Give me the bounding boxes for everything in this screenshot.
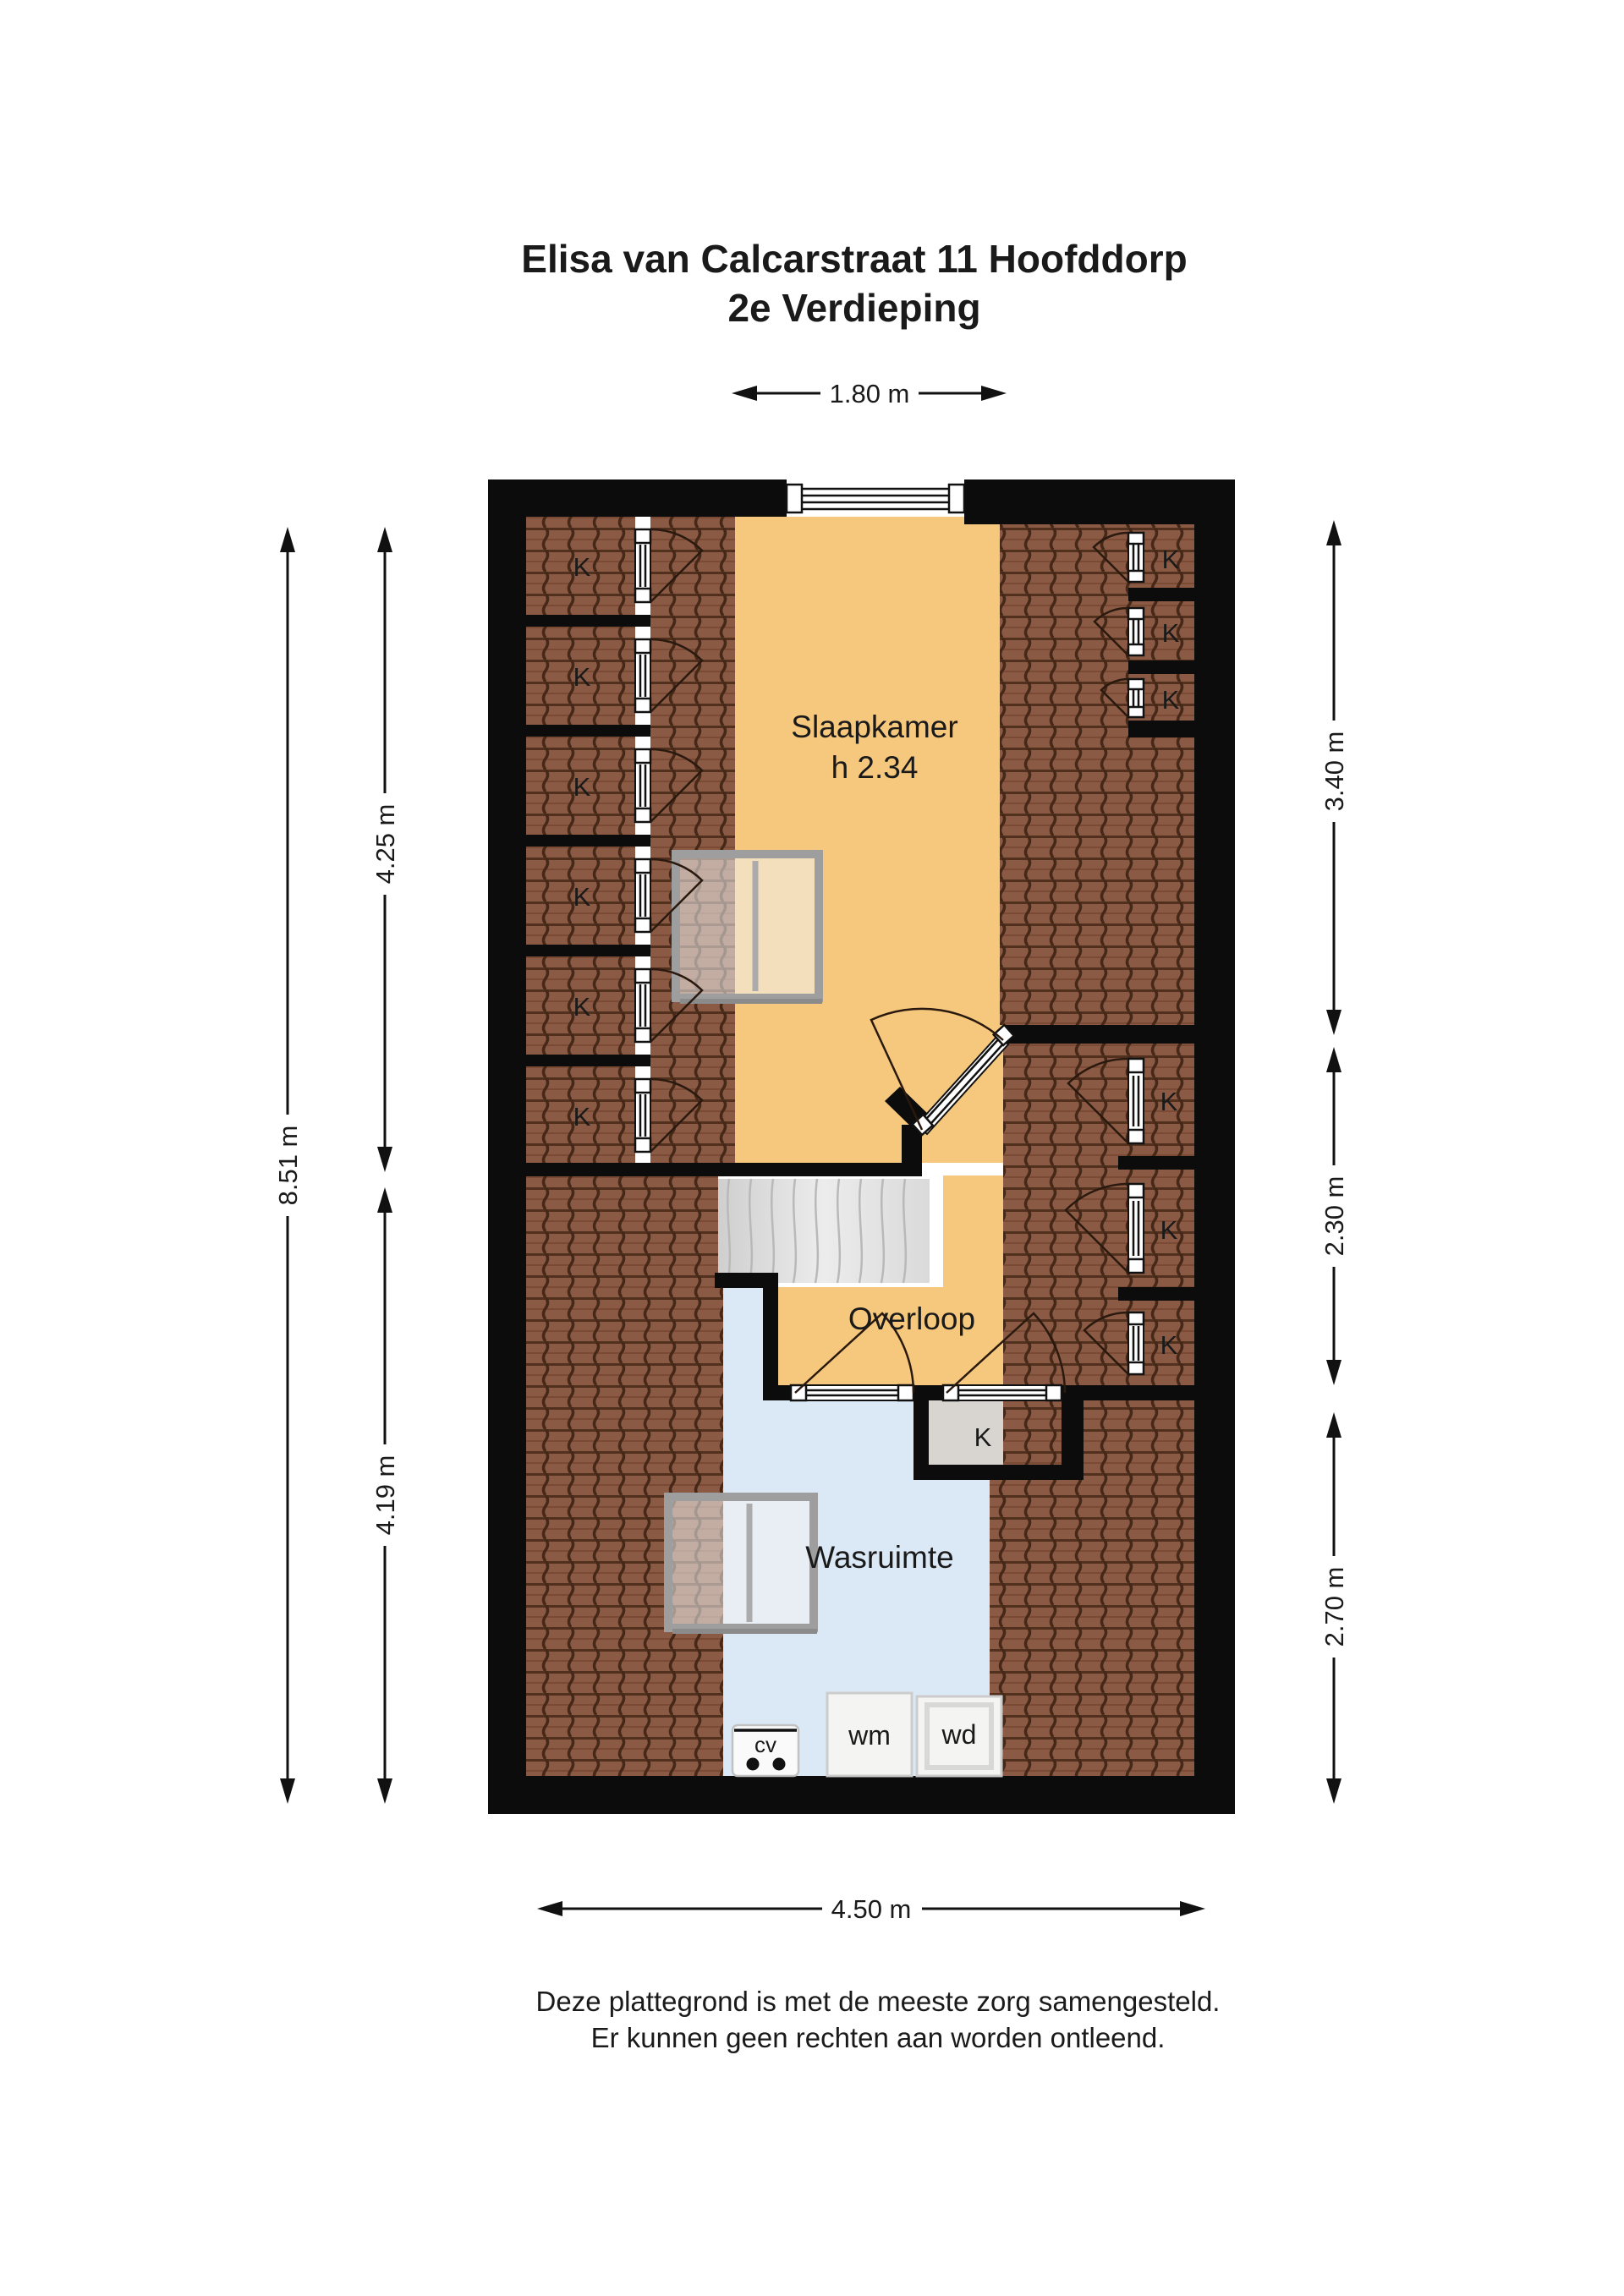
closet-label: K (974, 1422, 992, 1452)
dim-left-upper-label: 4.25 m (370, 804, 400, 885)
floorplan-page: Elisa van Calcarstraat 11 Hoofddorp 2e V… (0, 0, 1624, 2296)
closet-label: K (1162, 545, 1180, 574)
wall-landing-south-east (1062, 1385, 1194, 1400)
closet-label: K (573, 772, 591, 802)
wall-bottom (488, 1776, 1235, 1814)
wall-hall-closet-south (913, 1465, 1084, 1480)
washing-machine: wm (827, 1693, 912, 1776)
dim-top-label: 1.80 m (830, 379, 910, 408)
staircase (718, 1174, 943, 1283)
dim-left-lower-label: 4.19 m (370, 1455, 400, 1536)
closet-label: K (573, 992, 591, 1022)
roof-tiles-hall-closet (1003, 1400, 1062, 1465)
bedroom-height-label: h 2.34 (831, 750, 919, 785)
dim-left-total-label: 8.51 m (273, 1126, 303, 1206)
dim-right-upper-label: 3.40 m (1319, 732, 1349, 812)
wall-bedroom-south (1003, 1025, 1194, 1044)
closet-label: K (1162, 618, 1180, 648)
roof-tiles-bottom-left (526, 1175, 723, 1776)
corridor-floor (943, 1175, 1003, 1301)
dryer: wd (917, 1696, 1001, 1776)
dim-left-lower: 4.19 m (370, 1187, 400, 1804)
roof-tiles-left-strip (650, 517, 735, 1164)
hall-closet-floor (929, 1400, 1005, 1465)
footer-line2: Er kunnen geen rechten aan worden ontlee… (591, 2022, 1166, 2053)
dim-left-total: 8.51 m (273, 527, 303, 1804)
dim-bottom-label: 4.50 m (831, 1894, 912, 1924)
boiler-unit: cv (732, 1725, 798, 1776)
laundry-label: Wasruimte (805, 1540, 953, 1575)
dryer-label: wd (941, 1719, 977, 1750)
skylight-laundry (668, 1497, 817, 1631)
washing-machine-label: wm (848, 1720, 891, 1751)
dim-right-middle: 2.30 m (1319, 1047, 1349, 1385)
page-title-line1: Elisa van Calcarstraat 11 Hoofddorp (521, 237, 1187, 281)
wall-above-stairs (526, 1163, 922, 1176)
footer-line1: Deze plattegrond is met de meeste zorg s… (536, 1986, 1221, 2017)
boiler-label: cv (754, 1732, 776, 1757)
dim-right-upper: 3.40 m (1319, 520, 1349, 1035)
dim-right-lower-label: 2.70 m (1319, 1567, 1349, 1647)
dim-bottom-total: 4.50 m (537, 1894, 1205, 1924)
dim-right-middle-label: 2.30 m (1319, 1176, 1349, 1257)
floorplan-drawing: Elisa van Calcarstraat 11 Hoofddorp 2e V… (0, 0, 1624, 2296)
closet-label: K (1160, 1215, 1178, 1245)
closet-label: K (573, 1102, 591, 1132)
closet-label: K (573, 662, 591, 692)
dim-right-lower: 2.70 m (1319, 1412, 1349, 1804)
wall-landing-west (763, 1273, 778, 1400)
dim-top-window: 1.80 m (732, 379, 1007, 408)
closet-label: K (1160, 1087, 1178, 1116)
closet-label: K (1160, 1330, 1178, 1360)
dim-left-upper: 4.25 m (370, 527, 400, 1172)
wall-left (488, 479, 526, 1814)
wall-right (1194, 479, 1235, 1814)
landing-label: Overloop (848, 1301, 975, 1336)
bedroom-floor (735, 517, 1003, 1163)
closet-label: K (573, 882, 591, 912)
bedroom-label: Slaapkamer (791, 710, 957, 744)
wall-top-left (488, 479, 787, 517)
closet-label: K (573, 552, 591, 582)
closet-label: K (1162, 685, 1180, 715)
window-top (787, 479, 964, 517)
page-title-line2: 2e Verdieping (727, 286, 980, 330)
